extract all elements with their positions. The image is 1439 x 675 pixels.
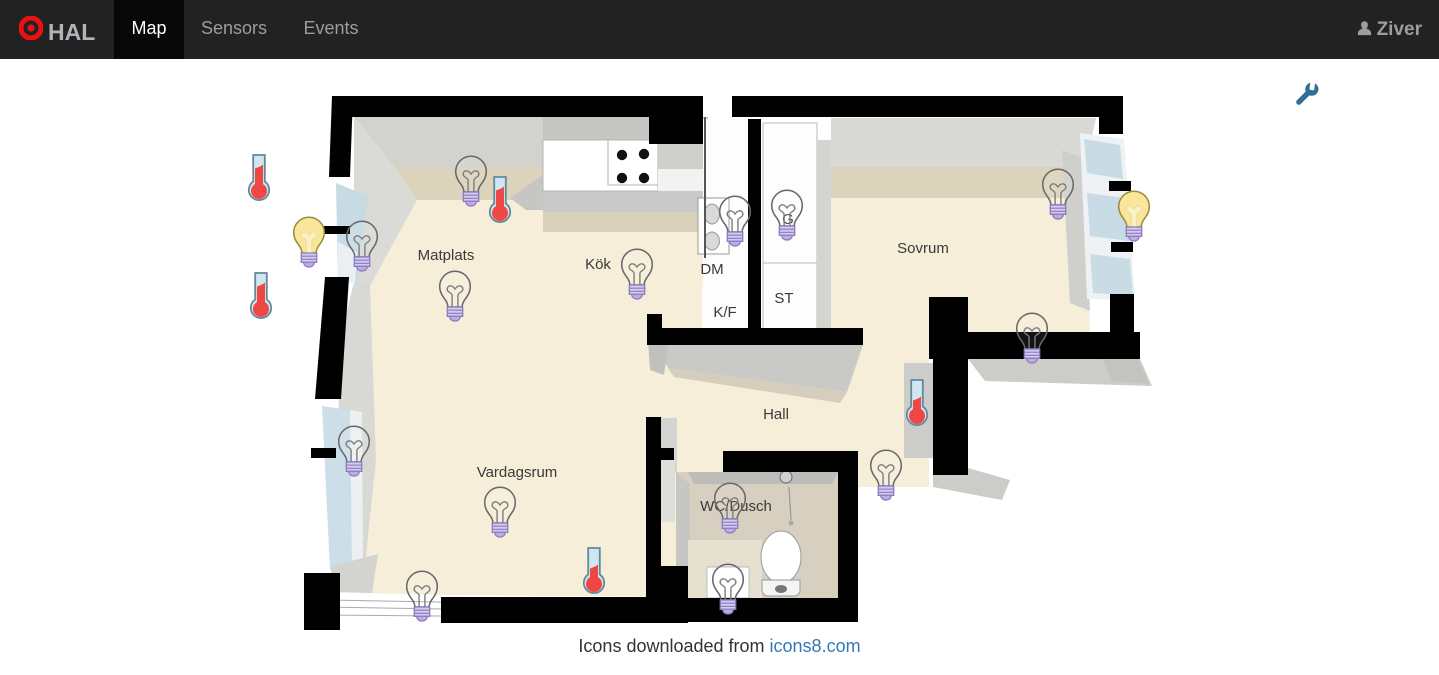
svg-text:Matplats: Matplats (418, 247, 475, 264)
svg-text:Hall: Hall (763, 406, 789, 423)
svg-text:Vardagsrum: Vardagsrum (477, 464, 558, 481)
svg-text:DM: DM (700, 261, 723, 278)
svg-text:Kök: Kök (585, 256, 611, 273)
svg-text:ST: ST (774, 290, 793, 307)
svg-text:Sovrum: Sovrum (897, 240, 949, 257)
svg-text:K/F: K/F (713, 304, 736, 321)
